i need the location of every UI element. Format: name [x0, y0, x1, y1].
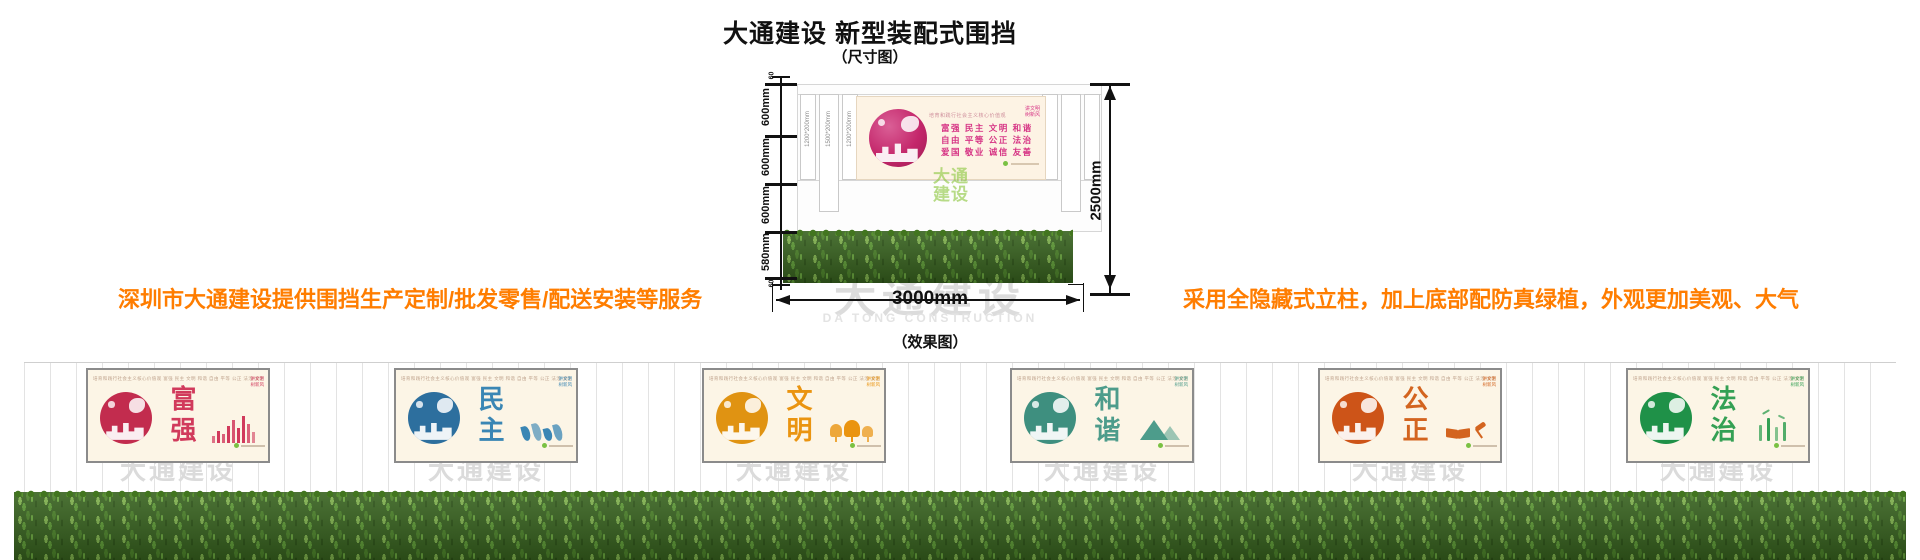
city-bars-icon	[212, 407, 260, 443]
right-feature-note: 采用全隐藏式立柱，加上底部配防真绿植，外观更加美观、大气	[1183, 282, 1799, 314]
papercut-art	[108, 401, 114, 407]
footer-line	[857, 445, 881, 447]
book-gavel-icon	[1444, 407, 1492, 443]
extension-line	[1083, 283, 1084, 312]
logo-dot-icon	[1003, 161, 1008, 166]
left-service-note: 深圳市大通建设提供围挡生产定制/批发零售/配送安装等服务	[118, 282, 702, 314]
arrow-left-icon	[776, 295, 790, 305]
corner-slogan-line: 树新风	[1025, 112, 1040, 118]
values-panel-wenming: 培育和践行社会主义核心价值观 富强 民主 文明 和谐 自由 平等 公正 法治 爱…	[702, 368, 886, 463]
corner-slogan-line: 讲文明	[559, 376, 573, 382]
diagram-grass-hedge	[783, 231, 1073, 283]
corner-slogan: 讲文明 树新风	[251, 376, 265, 387]
footer-line	[1781, 445, 1805, 447]
logo-dot-icon	[1158, 443, 1163, 448]
corner-slogan-line: 树新风	[559, 382, 573, 388]
corner-slogan: 讲文明 树新风	[1025, 106, 1040, 118]
dimension-figure-caption: （尺寸图）	[620, 46, 1120, 67]
city-skyline-art	[722, 421, 759, 440]
segment-dimension-label: 600mm	[760, 81, 772, 133]
corner-slogan-line: 讲文明	[1791, 376, 1805, 382]
footer-line	[1473, 445, 1497, 447]
footer-line	[241, 445, 265, 447]
corner-slogan-line: 树新风	[1483, 382, 1497, 388]
total-height-label: 2500mm	[1088, 151, 1105, 231]
corner-slogan: 讲文明 树新风	[1483, 376, 1497, 387]
papercut-art	[901, 116, 920, 132]
panel-top-line: 培育和践行社会主义核心价值观 富强 民主 文明 和谐 自由 平等 公正 法治 爱…	[401, 376, 571, 382]
green-watermark-line: 大通	[921, 168, 981, 186]
papercut-art	[1340, 401, 1346, 407]
papercut-art	[745, 398, 762, 413]
post-size-label: 1500*200mm	[826, 91, 832, 167]
logo-dot-icon	[850, 443, 855, 448]
arrow-right-icon	[1066, 295, 1080, 305]
values-panel-hexie: 培育和践行社会主义核心价值观 富强 民主 文明 和谐 自由 平等 公正 法治 爱…	[1010, 368, 1194, 463]
footer-line	[1011, 163, 1039, 165]
effect-figure-caption: （效果图）	[780, 331, 1080, 352]
logo-dot-icon	[542, 443, 547, 448]
papercut-art	[437, 398, 454, 413]
total-width-label: 3000mm	[850, 288, 1010, 310]
papercut-art	[1669, 398, 1686, 413]
city-skyline-art	[1030, 421, 1067, 440]
papercut-circle-illustration	[100, 392, 152, 444]
effect-grass-hedge	[14, 492, 1906, 560]
papercut-art	[878, 119, 885, 126]
papercut-circle-illustration	[1332, 392, 1384, 444]
panel-word: 文明	[780, 385, 817, 455]
arrow-up-icon	[1104, 86, 1116, 100]
corner-slogan-line: 讲文明	[1483, 376, 1497, 382]
corner-slogan: 讲文明 树新风	[559, 376, 573, 387]
arrow-down-icon	[1104, 275, 1116, 289]
bamboo-icon	[1752, 407, 1800, 443]
core-values-text: 富强 民主 文明 和谐 自由 平等 公正 法治 爱国 敬业 诚信 友善	[941, 122, 1033, 158]
extension-stub	[772, 284, 788, 285]
segment-dimension-label: 600mm	[760, 179, 772, 231]
city-skyline-art	[414, 421, 451, 440]
corner-slogan-line: 树新风	[1175, 382, 1189, 388]
panel-word: 和谐	[1088, 385, 1125, 455]
panel-word: 民主	[472, 385, 509, 455]
logo-dot-icon	[234, 443, 239, 448]
green-watermark-line: 建设	[921, 186, 981, 204]
papercut-circle-illustration	[1640, 392, 1692, 444]
watermark-en: DA TONG CONSTRUCTION	[770, 311, 1090, 325]
corner-slogan-line: 讲文明	[251, 376, 265, 382]
papercut-art	[1053, 398, 1070, 413]
panel-top-line: 培育和践行社会主义核心价值观 富强 民主 文明 和谐 自由 平等 公正 法治 爱…	[1017, 376, 1187, 382]
values-panel-fazhi: 培育和践行社会主义核心价值观 富强 民主 文明 和谐 自由 平等 公正 法治 爱…	[1626, 368, 1810, 463]
post-size-label: 1200*200mm	[805, 91, 811, 167]
panel-word: 公正	[1396, 385, 1433, 455]
hoarding-poster: 大通建设 新型装配式围挡 （尺寸图） 深圳市大通建设提供围挡生产定制/批发零售/…	[0, 0, 1920, 560]
papercut-circle-illustration	[869, 109, 927, 167]
people-flags-icon	[520, 407, 568, 443]
papercut-circle-illustration	[716, 392, 768, 444]
papercut-circle-illustration	[1024, 392, 1076, 444]
city-skyline-art	[876, 142, 918, 163]
city-skyline-art	[1646, 421, 1683, 440]
papercut-art	[1361, 398, 1378, 413]
corner-slogan: 讲文明 树新风	[1791, 376, 1805, 387]
values-panel-minzhu: 培育和践行社会主义核心价值观 富强 民主 文明 和谐 自由 平等 公正 法治 爱…	[394, 368, 578, 463]
papercut-art	[724, 401, 730, 407]
fence-post	[1061, 94, 1081, 212]
footer-line	[549, 445, 573, 447]
corner-slogan: 讲文明 树新风	[1175, 376, 1189, 387]
segment-dimension-label: 580mm	[760, 226, 772, 278]
corner-slogan-line: 树新风	[251, 382, 265, 388]
green-logo-watermark: 大通 建设	[921, 168, 981, 204]
corner-slogan: 讲文明 树新风	[867, 376, 881, 387]
total-height-dimension-line	[1109, 84, 1111, 295]
papercut-art	[1032, 401, 1038, 407]
panel-word: 法治	[1704, 385, 1741, 455]
corner-slogan-line: 树新风	[1791, 382, 1805, 388]
city-skyline-art	[1338, 421, 1375, 440]
corner-slogan-line: 讲文明	[1175, 376, 1189, 382]
panel-top-line: 培育和践行社会主义核心价值观 富强 民主 文明 和谐 自由 平等 公正 法治 爱…	[1325, 376, 1495, 382]
panel-top-line: 培育和践行社会主义核心价值观 富强 民主 文明 和谐 自由 平等 公正 法治 爱…	[709, 376, 879, 382]
values-panel-fuqiang: 培育和践行社会主义核心价值观 富强 民主 文明 和谐 自由 平等 公正 法治 爱…	[86, 368, 270, 463]
page-title: 大通建设 新型装配式围挡	[620, 14, 1120, 50]
values-line: 爱国 敬业 诚信 友善	[941, 146, 1033, 158]
logo-dot-icon	[1774, 443, 1779, 448]
papercut-circle-illustration	[408, 392, 460, 444]
city-skyline-art	[106, 421, 143, 440]
logo-dot-icon	[1466, 443, 1471, 448]
corner-slogan-line: 讲文明	[867, 376, 881, 382]
panel-word: 富强	[164, 385, 201, 455]
mountain-icon	[1136, 407, 1184, 443]
values-line: 富强 民主 文明 和谐	[941, 122, 1033, 134]
papercut-art	[129, 398, 146, 413]
footer-line	[1165, 445, 1189, 447]
corner-slogan-line: 树新风	[867, 382, 881, 388]
papercut-art	[416, 401, 422, 407]
trees-icon	[828, 407, 876, 443]
panel-top-line: 培育和践行社会主义核心价值观 富强 民主 文明 和谐 自由 平等 公正 法治 爱…	[93, 376, 263, 382]
values-panel-gongzheng: 培育和践行社会主义核心价值观 富强 民主 文明 和谐 自由 平等 公正 法治 爱…	[1318, 368, 1502, 463]
segment-dimension-label: 600mm	[760, 131, 772, 183]
values-line: 自由 平等 公正 法治	[941, 134, 1033, 146]
post-size-label: 1200*200mm	[847, 91, 853, 167]
panel-top-line: 培育和践行社会主义核心价值观 富强 民主 文明 和谐 自由 平等 公正 法治 爱…	[1633, 376, 1803, 382]
extension-stub	[1068, 284, 1084, 285]
extension-line	[772, 283, 773, 312]
papercut-art	[1648, 401, 1654, 407]
